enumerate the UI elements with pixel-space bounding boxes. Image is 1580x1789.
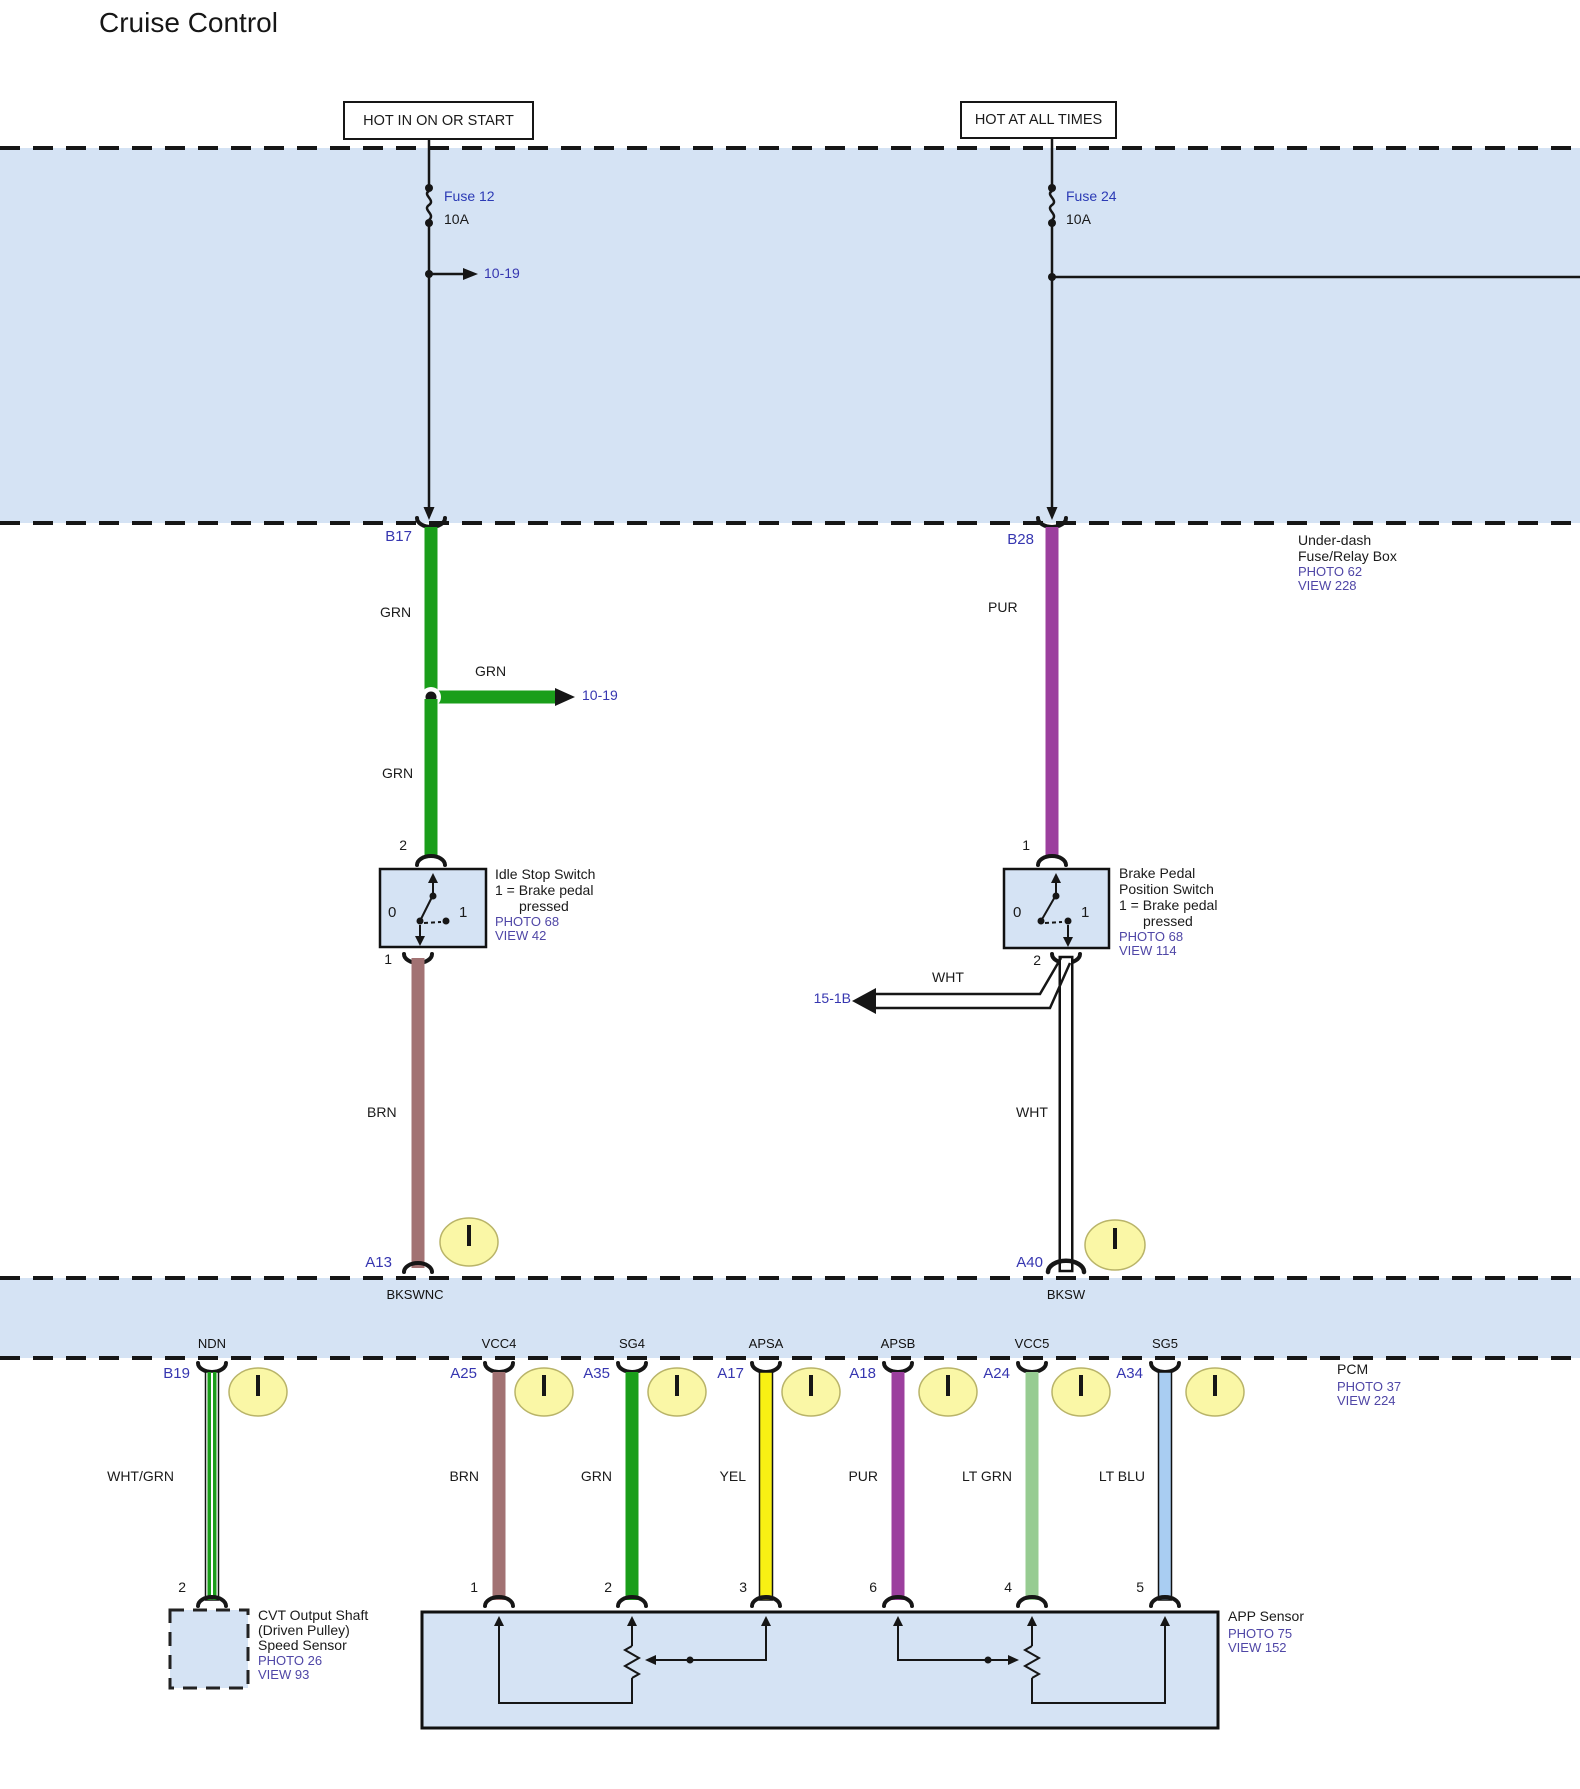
pin-a25-label: A25 <box>450 1366 477 1383</box>
b17-connector-cup <box>417 518 445 527</box>
terminal-b19: 2 <box>178 1580 186 1595</box>
brake-terminal-1: 1 <box>1022 838 1030 853</box>
brake-switch-name2: Position Switch <box>1119 882 1214 897</box>
top-branch-dest-label: 10-19 <box>484 266 520 281</box>
pcm-out-sg5: SG5 <box>1115 1337 1215 1351</box>
app-sensor-name: APP Sensor <box>1228 1609 1304 1624</box>
idle-switch-dot-0 <box>417 918 424 925</box>
idle-switch-dot-1 <box>443 918 450 925</box>
grn-wire-lower <box>425 699 438 858</box>
wiring-diagram-page: Cruise Control HOT IN ON OR START HOT AT… <box>0 0 1580 1789</box>
idle-switch-dot-top <box>430 893 437 900</box>
inline-connector-icon <box>440 1218 498 1266</box>
wht-wire-label: WHT <box>1016 1105 1048 1120</box>
wht-branch-arrow <box>852 988 876 1014</box>
grn-wire-label-lower: GRN <box>382 766 413 781</box>
left-branch-arrow <box>463 268 478 280</box>
pcm-out-vcc5: VCC5 <box>982 1337 1082 1351</box>
idle-switch-note2: pressed <box>519 899 569 914</box>
diagram-graphics <box>0 0 1580 1789</box>
fuse-24-top-dot <box>1048 184 1056 192</box>
fuse-24-bottom-dot <box>1048 219 1056 227</box>
fuse-24-amp: 10A <box>1066 212 1091 227</box>
terminal-a24: 4 <box>1004 1580 1012 1595</box>
pcm-out-ndn: NDN <box>162 1337 262 1351</box>
right-rail-wire <box>1050 136 1580 510</box>
pin-b28-label: B28 <box>1007 532 1034 549</box>
wire-label-lt-blu: LT BLU <box>1099 1469 1145 1484</box>
pcm-out-apsa: APSA <box>716 1337 816 1351</box>
lt-blu-wire-a34 <box>1159 1372 1172 1600</box>
brake-switch-view: VIEW 114 <box>1119 944 1177 958</box>
brake-switch-dot-top <box>1053 893 1060 900</box>
wire-label-pur: PUR <box>848 1469 878 1484</box>
pur-wire-label: PUR <box>988 600 1018 615</box>
app-left-wiper-dot <box>687 1657 694 1664</box>
brn-wire-label: BRN <box>367 1105 397 1120</box>
wire-label-yel: YEL <box>720 1469 746 1484</box>
hot-at-all-times-box: HOT AT ALL TIMES <box>960 101 1117 139</box>
terminal-a35: 2 <box>604 1580 612 1595</box>
idle-switch-pos0: 0 <box>388 905 396 922</box>
pin-a35-label: A35 <box>583 1366 610 1383</box>
pin-a13-label: A13 <box>365 1255 392 1272</box>
fusebox-note-line2: Fuse/Relay Box <box>1298 549 1397 564</box>
idle-switch-view: VIEW 42 <box>495 929 546 943</box>
fuse-12-symbol <box>427 191 431 220</box>
pin-a24-label: A24 <box>983 1366 1010 1383</box>
wht-branch-dest-label: 15-1B <box>814 991 851 1006</box>
wht-wire <box>1060 957 1073 1271</box>
fuse-12-label: Fuse 12 <box>444 189 495 204</box>
grn-branch-dest-label: 10-19 <box>582 688 618 703</box>
cvt-sensor-line3: Speed Sensor <box>258 1638 347 1653</box>
grn-wire-a35 <box>626 1372 639 1600</box>
grn-wire-label-upper: GRN <box>380 605 411 620</box>
fuse-24-symbol <box>1050 191 1054 220</box>
brake-switch-dot-1 <box>1065 918 1072 925</box>
fusebox-note-view: VIEW 228 <box>1298 579 1357 593</box>
inline-connector-icon <box>1085 1220 1145 1270</box>
pcm-label: PCM <box>1337 1362 1368 1377</box>
right-branch-junction-dot <box>1048 273 1056 281</box>
brake-terminal-2: 2 <box>1033 953 1041 968</box>
pcm-in-bkswnc: BKSWNC <box>365 1288 465 1302</box>
brake-switch-dot-0 <box>1038 918 1045 925</box>
pin-a40-label: A40 <box>1016 1255 1043 1272</box>
grn-branch-label: GRN <box>475 664 506 679</box>
terminal-a34: 5 <box>1136 1580 1144 1595</box>
idle-switch-name: Idle Stop Switch <box>495 867 595 882</box>
wire-label-grn: GRN <box>581 1469 612 1484</box>
terminal-a18: 6 <box>869 1580 877 1595</box>
cvt-speed-sensor-box <box>170 1610 248 1688</box>
grn-branch-wire <box>431 691 557 704</box>
app-sensor-box <box>422 1612 1218 1728</box>
wht-branch-label: WHT <box>932 970 964 985</box>
page-title: Cruise Control <box>99 8 278 39</box>
pcm-out-apsb: APSB <box>848 1337 948 1351</box>
brake-switch-terminal1-cap <box>1038 856 1066 865</box>
wire-label-lt-grn: LT GRN <box>962 1469 1012 1484</box>
hot-in-on-or-start-label: HOT IN ON OR START <box>363 113 514 129</box>
pin-a34-label: A34 <box>1116 1366 1143 1383</box>
hot-at-all-times-label: HOT AT ALL TIMES <box>975 112 1102 128</box>
app-sensor-view: VIEW 152 <box>1228 1641 1287 1655</box>
brake-switch-pos0: 0 <box>1013 905 1021 922</box>
idle-terminal-1: 1 <box>384 952 392 967</box>
idle-switch-terminal2-cap <box>417 856 445 865</box>
grn-wire-upper <box>425 527 438 697</box>
pcm-in-bksw: BKSW <box>1016 1288 1116 1302</box>
pin-a17-label: A17 <box>717 1366 744 1383</box>
wire-label-brn: BRN <box>449 1469 479 1484</box>
idle-terminal-2: 2 <box>399 838 407 853</box>
grn-branch-arrow <box>555 688 575 706</box>
pcm-out-sg4: SG4 <box>582 1337 682 1351</box>
pin-b17-label: B17 <box>385 529 412 546</box>
pcm-out-vcc4: VCC4 <box>449 1337 549 1351</box>
pcm-view: VIEW 224 <box>1337 1394 1396 1408</box>
b17-arrowhead <box>424 507 435 520</box>
cvt-sensor-view: VIEW 93 <box>258 1668 309 1682</box>
brn-wire-a25 <box>493 1372 506 1600</box>
idle-switch-note1: 1 = Brake pedal <box>495 883 593 898</box>
fuse-24-label: Fuse 24 <box>1066 189 1117 204</box>
pur-wire <box>1046 527 1059 858</box>
pur-wire-a18 <box>892 1372 905 1600</box>
wht-grn-wire <box>206 1372 219 1600</box>
lt-grn-wire-a24 <box>1026 1372 1039 1600</box>
brake-switch-note1: 1 = Brake pedal <box>1119 898 1217 913</box>
brn-wire <box>412 958 425 1268</box>
terminal-a25: 1 <box>470 1580 478 1595</box>
fuse-12-top-dot <box>425 184 433 192</box>
fusebox-note-line1: Under-dash <box>1298 533 1371 548</box>
brake-switch-note2: pressed <box>1143 914 1193 929</box>
left-branch-junction-dot <box>425 270 433 278</box>
sensor-terminal-caps <box>198 1597 1179 1606</box>
yel-wire-a17 <box>760 1372 773 1600</box>
brake-switch-name1: Brake Pedal <box>1119 866 1195 881</box>
fuse-12-bottom-dot <box>425 219 433 227</box>
pin-b19-label: B19 <box>163 1366 190 1383</box>
fuse-12-amp: 10A <box>444 212 469 227</box>
hot-in-on-or-start-box: HOT IN ON OR START <box>343 101 534 140</box>
idle-switch-pos1: 1 <box>459 905 467 922</box>
terminal-a17: 3 <box>739 1580 747 1595</box>
app-right-wiper-dot <box>985 1657 992 1664</box>
b28-arrowhead <box>1047 507 1058 520</box>
pin-a18-label: A18 <box>849 1366 876 1383</box>
brake-switch-pos1: 1 <box>1081 905 1089 922</box>
wire-label-wht-grn: WHT/GRN <box>107 1469 174 1484</box>
